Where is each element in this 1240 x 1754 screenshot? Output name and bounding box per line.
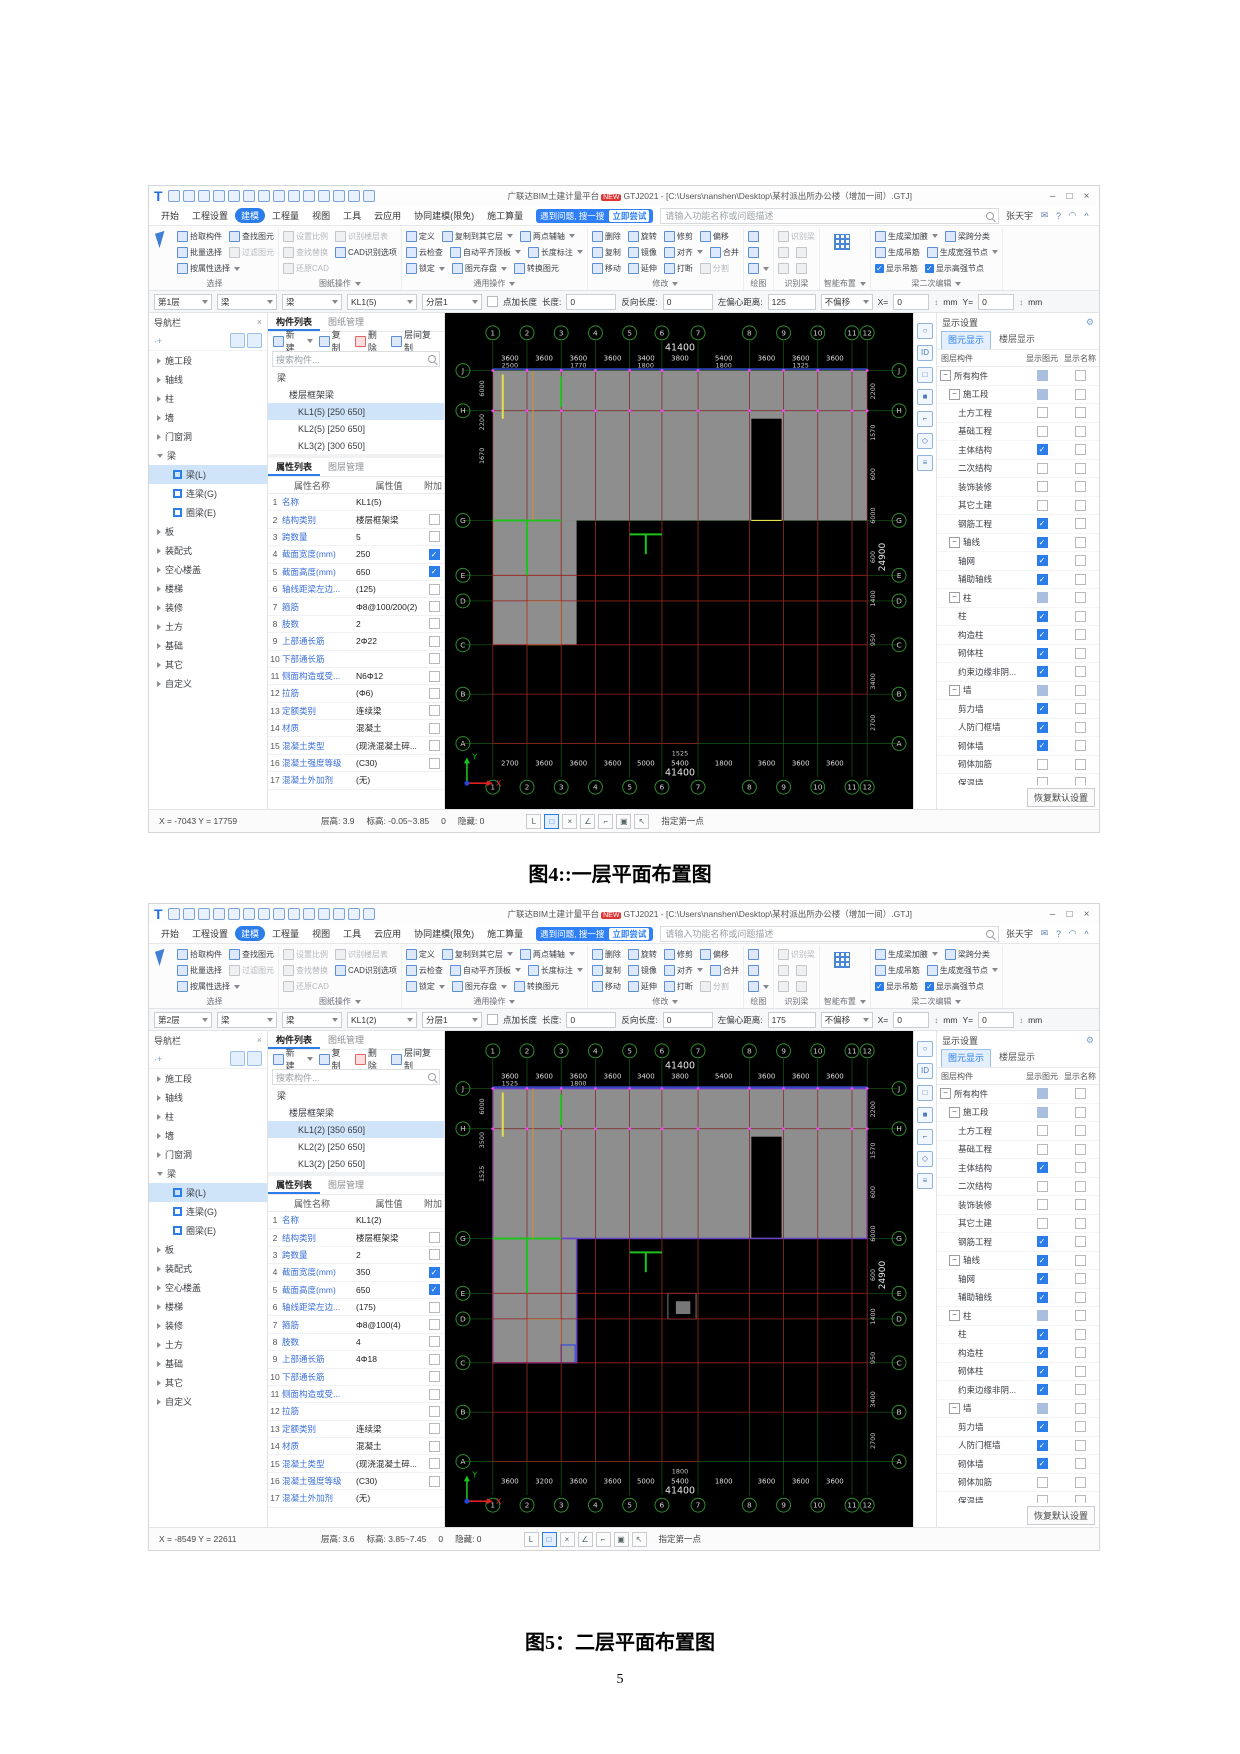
property-row[interactable]: 16混凝土强度等级(C30): [268, 755, 444, 772]
show-name-checkbox[interactable]: [1075, 1495, 1086, 1503]
ribbon-item[interactable]: 移动: [592, 981, 621, 992]
ribbon-item[interactable]: [778, 247, 789, 258]
layer-select[interactable]: 分层1: [422, 1012, 482, 1028]
menu-tab[interactable]: 建模: [235, 208, 265, 223]
ribbon-item[interactable]: 复制到其它层: [442, 949, 513, 960]
sidebar-item[interactable]: 墙: [149, 1126, 267, 1145]
sidebar-item[interactable]: 自定义: [149, 674, 267, 693]
show-name-checkbox[interactable]: [1075, 1384, 1086, 1395]
display-row[interactable]: 砌体墙: [937, 1455, 1099, 1474]
sidebar-item[interactable]: 圈梁(E): [149, 1221, 267, 1240]
sidebar-item[interactable]: 其它: [149, 1373, 267, 1392]
menu-tab[interactable]: 建模: [235, 926, 265, 941]
zoom-window-icon[interactable]: ⌐: [917, 1129, 933, 1145]
ribbon-item[interactable]: 云检查: [406, 247, 443, 258]
compare-icon[interactable]: [303, 908, 315, 920]
tab-layer-management[interactable]: 图层管理: [320, 1176, 372, 1194]
show-element-checkbox[interactable]: [1037, 1162, 1048, 1173]
ribbon-item[interactable]: CAD识别选项: [335, 965, 397, 976]
ribbon-item[interactable]: 延伸: [628, 981, 657, 992]
property-row[interactable]: 9上部通长筋2Φ22: [268, 633, 444, 650]
show-name-checkbox[interactable]: [1075, 629, 1086, 640]
property-row[interactable]: 17混凝土外加剂(无): [268, 1490, 444, 1507]
close-icon[interactable]: ×: [257, 317, 262, 327]
ribbon-item[interactable]: 识别楼层表: [335, 949, 388, 960]
sidebar-item[interactable]: 自定义: [149, 1392, 267, 1411]
sidebar-item[interactable]: 装配式: [149, 1259, 267, 1278]
subcategory-select[interactable]: 梁: [282, 294, 342, 310]
menu-tab[interactable]: 开始: [155, 208, 185, 223]
close-icon[interactable]: ×: [257, 1035, 262, 1045]
sidebar-item[interactable]: 其它: [149, 655, 267, 674]
function-search-input[interactable]: 请输入功能名称或问题描述: [660, 926, 999, 942]
display-row[interactable]: 柱: [937, 1326, 1099, 1345]
redo-icon[interactable]: [243, 190, 255, 202]
property-value[interactable]: Φ8@100(4): [356, 1320, 424, 1330]
show-element-checkbox[interactable]: [1037, 1273, 1048, 1284]
show-name-checkbox[interactable]: [1075, 666, 1086, 677]
display-row[interactable]: 构造柱: [937, 1344, 1099, 1363]
property-value[interactable]: (Φ6): [356, 688, 424, 698]
rect-select-icon[interactable]: □: [544, 814, 559, 829]
ribbon-item[interactable]: 镜像: [628, 965, 657, 976]
show-element-checkbox[interactable]: [1037, 1403, 1048, 1414]
property-value[interactable]: KL1(2): [356, 1215, 424, 1225]
floor-select[interactable]: 第2层: [154, 1012, 212, 1028]
show-name-checkbox[interactable]: [1075, 1181, 1086, 1192]
ribbon-item[interactable]: 两点辅轴: [520, 231, 575, 242]
attach-checkbox[interactable]: [429, 1423, 440, 1434]
display-row[interactable]: 保温墙: [937, 774, 1099, 785]
solid-cube-icon[interactable]: ■: [917, 1107, 933, 1123]
show-element-checkbox[interactable]: [1037, 1125, 1048, 1136]
minimize-button[interactable]: –: [1045, 909, 1060, 920]
ribbon-item[interactable]: 识别梁: [778, 231, 815, 242]
sidebar-item[interactable]: 墙: [149, 408, 267, 427]
maximize-button[interactable]: □: [1062, 191, 1077, 202]
property-row[interactable]: 11侧面构造或受...N6Φ12: [268, 668, 444, 685]
property-row[interactable]: 2结构类别楼层框架梁: [268, 511, 444, 528]
display-row[interactable]: 砌体柱: [937, 1363, 1099, 1382]
compare-icon[interactable]: [303, 190, 315, 202]
menu-tab[interactable]: 工程设置: [186, 926, 234, 941]
property-row[interactable]: 1名称KL1(5): [268, 494, 444, 511]
show-name-checkbox[interactable]: [1075, 1477, 1086, 1488]
sidebar-item[interactable]: 空心楼盖: [149, 560, 267, 579]
sidebar-item[interactable]: 施工段: [149, 1069, 267, 1088]
ribbon-item[interactable]: 生成梁加腋: [875, 949, 938, 960]
category-select[interactable]: 梁: [217, 1012, 277, 1028]
show-name-checkbox[interactable]: [1075, 759, 1086, 770]
property-value[interactable]: Φ8@100/200(2): [356, 602, 424, 612]
property-value[interactable]: 4: [356, 1337, 424, 1347]
show-element-checkbox[interactable]: [1037, 1310, 1048, 1321]
menu-tab[interactable]: 施工算量: [481, 208, 529, 223]
ribbon-item[interactable]: [796, 981, 807, 992]
property-value[interactable]: (C30): [356, 1476, 424, 1486]
show-name-checkbox[interactable]: [1075, 1107, 1086, 1118]
ribbon-item[interactable]: 偏移: [700, 231, 729, 242]
ribbon-item[interactable]: 定义: [406, 949, 435, 960]
layout-icon[interactable]: [333, 908, 345, 920]
display-row[interactable]: 人防门框墙: [937, 719, 1099, 738]
layout-icon[interactable]: [333, 190, 345, 202]
ortho-mode-icon[interactable]: L: [526, 814, 541, 829]
list-view-button[interactable]: [230, 333, 245, 348]
tab-property-list[interactable]: 属性列表: [268, 458, 320, 476]
display-row[interactable]: 其它土建: [937, 497, 1099, 516]
menu-tab[interactable]: 工程量: [266, 926, 305, 941]
show-element-checkbox[interactable]: [1037, 722, 1048, 733]
property-value[interactable]: 4Φ18: [356, 1354, 424, 1364]
ribbon-item[interactable]: 查找替换: [283, 247, 328, 258]
show-name-checkbox[interactable]: [1075, 389, 1086, 400]
show-name-checkbox[interactable]: [1075, 426, 1086, 437]
angle-snap-icon[interactable]: ∠: [578, 1532, 593, 1547]
zoom-window-icon[interactable]: ⌐: [917, 411, 933, 427]
menu-tab[interactable]: 工程设置: [186, 208, 234, 223]
ribbon-item[interactable]: 拾取构件: [177, 231, 222, 242]
show-element-checkbox[interactable]: [1037, 1144, 1048, 1155]
ribbon-item[interactable]: 移动: [592, 263, 621, 274]
display-row[interactable]: 砌体加筋: [937, 756, 1099, 775]
display-row[interactable]: 基础工程: [937, 423, 1099, 442]
ribbon-item[interactable]: [748, 263, 769, 274]
user-name[interactable]: 张天宇: [1006, 209, 1033, 222]
display-row[interactable]: 辅助轴线: [937, 571, 1099, 590]
attach-checkbox[interactable]: [429, 1458, 440, 1469]
collapse-icon[interactable]: −: [949, 389, 960, 400]
ribbon-item[interactable]: 图元存盘: [452, 981, 507, 992]
sidebar-item[interactable]: 连梁(G): [149, 1202, 267, 1221]
show-element-checkbox[interactable]: [1037, 592, 1048, 603]
display-row[interactable]: 约束边缘非阴...: [937, 1381, 1099, 1400]
display-row[interactable]: 二次结构: [937, 460, 1099, 479]
component-tree-item[interactable]: 楼层框架梁: [268, 386, 444, 403]
property-value[interactable]: 混凝土: [356, 1440, 424, 1452]
ribbon-item[interactable]: 显示高强节点: [925, 263, 984, 274]
attach-checkbox[interactable]: [429, 705, 440, 716]
sidebar-item[interactable]: 板: [149, 1240, 267, 1259]
ribbon-item[interactable]: 识别楼层表: [335, 231, 388, 242]
layer-select[interactable]: 分层1: [422, 294, 482, 310]
show-name-checkbox[interactable]: [1075, 1255, 1086, 1266]
property-row[interactable]: 5截面高度(mm)650: [268, 564, 444, 581]
component-tree-item[interactable]: KL1(5) [250 650]: [268, 403, 444, 420]
ribbon-item[interactable]: 还原CAD: [283, 263, 329, 274]
show-element-checkbox[interactable]: [1037, 611, 1048, 622]
tab-storey-display[interactable]: 楼层显示: [993, 331, 1041, 349]
property-value[interactable]: KL1(5): [356, 497, 424, 507]
checkbox-checked-icon[interactable]: [875, 264, 884, 273]
show-name-checkbox[interactable]: [1075, 555, 1086, 566]
display-row[interactable]: −施工段: [937, 1104, 1099, 1123]
redo-icon[interactable]: [243, 908, 255, 920]
display-row[interactable]: −墙: [937, 1400, 1099, 1419]
ribbon-item[interactable]: 删除: [592, 949, 621, 960]
tab-storey-display[interactable]: 楼层显示: [993, 1049, 1041, 1067]
ribbon-item[interactable]: 删除: [592, 231, 621, 242]
ribbon-item[interactable]: 查找图元: [229, 231, 274, 242]
user-name[interactable]: 张天宇: [1006, 927, 1033, 940]
offset-mode-select[interactable]: 不偏移: [821, 1012, 873, 1028]
show-element-checkbox[interactable]: [1037, 407, 1048, 418]
help-icon[interactable]: ?: [1052, 211, 1065, 221]
ribbon-item[interactable]: 梁跨分类: [945, 949, 990, 960]
component-select[interactable]: KL1(5): [347, 294, 417, 310]
ribbon-item[interactable]: 合并: [710, 247, 739, 258]
component-tree-item[interactable]: 楼层框架梁: [268, 1104, 444, 1121]
property-value[interactable]: (175): [356, 1302, 424, 1312]
ribbon-item[interactable]: 转换图元: [514, 981, 559, 992]
ribbon-item[interactable]: 查找替换: [283, 965, 328, 976]
attach-checkbox[interactable]: [429, 1406, 440, 1417]
property-row[interactable]: 15混凝土类型(现浇混凝土碎...: [268, 737, 444, 754]
sidebar-item[interactable]: 基础: [149, 636, 267, 655]
ribbon-item[interactable]: 设置比例: [283, 231, 328, 242]
display-row[interactable]: 钢筋工程: [937, 515, 1099, 534]
show-element-checkbox[interactable]: [1037, 1477, 1048, 1488]
show-name-checkbox[interactable]: [1075, 1292, 1086, 1303]
property-value[interactable]: 2: [356, 619, 424, 629]
smart-layout-icon[interactable]: [834, 234, 850, 250]
orbit-view-icon[interactable]: ○: [917, 1041, 933, 1057]
show-name-checkbox[interactable]: [1075, 1273, 1086, 1284]
ortho-mode-icon[interactable]: L: [524, 1532, 539, 1547]
attach-checkbox[interactable]: [429, 653, 440, 664]
ribbon-item[interactable]: 修剪: [664, 231, 693, 242]
display-row[interactable]: 砌体墙: [937, 737, 1099, 756]
floor-select[interactable]: 第1层: [154, 294, 212, 310]
display-row[interactable]: 轴网: [937, 1270, 1099, 1289]
sidebar-item[interactable]: 板: [149, 522, 267, 541]
show-name-checkbox[interactable]: [1075, 1403, 1086, 1414]
id-view-icon[interactable]: ID: [917, 345, 933, 361]
view-cube-icon[interactable]: □: [917, 1085, 933, 1101]
sidebar-item[interactable]: 连梁(G): [149, 484, 267, 503]
display-row[interactable]: 主体结构: [937, 1159, 1099, 1178]
ribbon-item[interactable]: 生成吊筋: [875, 965, 920, 976]
x-input[interactable]: 0: [893, 1012, 929, 1028]
restore-defaults-button[interactable]: 恢复默认设置: [1027, 1506, 1095, 1525]
display-row[interactable]: 土方工程: [937, 404, 1099, 423]
show-name-checkbox[interactable]: [1075, 1347, 1086, 1358]
property-row[interactable]: 12拉筋(Φ6): [268, 685, 444, 702]
attach-checkbox[interactable]: [429, 1249, 440, 1260]
sidebar-item[interactable]: 圈梁(E): [149, 503, 267, 522]
show-element-checkbox[interactable]: [1037, 537, 1048, 548]
ribbon-item[interactable]: 显示高强节点: [925, 981, 984, 992]
show-element-checkbox[interactable]: [1037, 370, 1048, 381]
offset-input[interactable]: 175: [768, 1012, 816, 1028]
ribbon-item[interactable]: [748, 965, 759, 976]
reverse-length-input[interactable]: 0: [663, 294, 713, 310]
sidebar-item[interactable]: 梁(L): [149, 465, 267, 484]
ribbon-item[interactable]: 生成宽强节点: [927, 965, 998, 976]
ribbon-item[interactable]: 定义: [406, 231, 435, 242]
show-name-checkbox[interactable]: [1075, 592, 1086, 603]
property-row[interactable]: 4截面宽度(mm)350: [268, 1264, 444, 1281]
ribbon-item[interactable]: 还原CAD: [283, 981, 329, 992]
collapse-icon[interactable]: −: [949, 1310, 960, 1321]
ribbon-item[interactable]: 两点辅轴: [520, 949, 575, 960]
show-element-checkbox[interactable]: [1037, 389, 1048, 400]
ribbon-item[interactable]: 旋转: [628, 231, 657, 242]
attach-checkbox[interactable]: [429, 618, 440, 629]
display-row[interactable]: −墙: [937, 682, 1099, 701]
display-row[interactable]: 保温墙: [937, 1492, 1099, 1503]
x-stepper[interactable]: [934, 297, 938, 307]
display-row[interactable]: −柱: [937, 589, 1099, 608]
display-row[interactable]: 土方工程: [937, 1122, 1099, 1141]
display-row[interactable]: 辅助轴线: [937, 1289, 1099, 1308]
property-value[interactable]: 5: [356, 532, 424, 542]
table-icon[interactable]: [288, 908, 300, 920]
ribbon-item[interactable]: 转换图元: [514, 263, 559, 274]
property-row[interactable]: 17混凝土外加剂(无): [268, 772, 444, 789]
select-cursor-icon[interactable]: [155, 949, 169, 966]
ribbon-item[interactable]: 自动平齐顶板: [450, 965, 521, 976]
ribbon-item[interactable]: 设置比例: [283, 949, 328, 960]
x-input[interactable]: 0: [893, 294, 929, 310]
show-element-checkbox[interactable]: [1037, 1421, 1048, 1432]
minimize-button[interactable]: –: [1045, 191, 1060, 202]
property-value[interactable]: (现浇混凝土碎...: [356, 740, 424, 752]
property-value[interactable]: 2: [356, 1250, 424, 1260]
show-element-checkbox[interactable]: [1037, 1292, 1048, 1303]
show-name-checkbox[interactable]: [1075, 500, 1086, 511]
menu-tab[interactable]: 云应用: [368, 208, 407, 223]
show-element-checkbox[interactable]: [1037, 1384, 1048, 1395]
property-row[interactable]: 5截面高度(mm)650: [268, 1282, 444, 1299]
sidebar-item[interactable]: 轴线: [149, 1088, 267, 1107]
length-input[interactable]: 0: [566, 294, 616, 310]
component-tree-item[interactable]: KL1(2) [350 650]: [268, 1121, 444, 1138]
show-element-checkbox[interactable]: [1037, 518, 1048, 529]
ribbon-item[interactable]: [796, 965, 807, 976]
ribbon-item[interactable]: [748, 247, 759, 258]
show-element-checkbox[interactable]: [1037, 1440, 1048, 1451]
menu-tab[interactable]: 工程量: [266, 208, 305, 223]
display-row[interactable]: 轴网: [937, 552, 1099, 571]
sidebar-item[interactable]: 装配式: [149, 541, 267, 560]
menu-tab[interactable]: 协同建模(限免): [408, 208, 480, 223]
ribbon-item[interactable]: 识别梁: [778, 949, 815, 960]
close-button[interactable]: ×: [1079, 909, 1094, 920]
ribbon-item[interactable]: 生成吊筋: [875, 247, 920, 258]
property-value[interactable]: 连续梁: [356, 1423, 424, 1435]
show-element-checkbox[interactable]: [1037, 1347, 1048, 1358]
collapse-icon[interactable]: −: [949, 1107, 960, 1118]
attach-checkbox[interactable]: [429, 1389, 440, 1400]
sync-icon[interactable]: [348, 190, 360, 202]
ribbon-item[interactable]: [796, 263, 807, 274]
component-search-input[interactable]: 搜索构件...: [272, 1069, 440, 1085]
property-row[interactable]: 4截面宽度(mm)250: [268, 546, 444, 563]
pick-mode-icon[interactable]: ↖: [632, 1532, 647, 1547]
ribbon-item[interactable]: 长度标注: [528, 965, 583, 976]
property-value[interactable]: N6Φ12: [356, 671, 424, 681]
help-banner[interactable]: 遇到问题, 搜一搜立即尝试: [536, 209, 653, 223]
checkbox-checked-icon[interactable]: [925, 982, 934, 991]
show-element-checkbox[interactable]: [1037, 1329, 1048, 1340]
property-value[interactable]: 250: [356, 549, 424, 559]
display-row[interactable]: −轴线: [937, 1252, 1099, 1271]
y-input[interactable]: 0: [978, 294, 1014, 310]
ribbon-item[interactable]: 复制: [592, 247, 621, 258]
ribbon-item[interactable]: 对齐: [664, 247, 703, 258]
ribbon-item[interactable]: 批量选择: [177, 965, 222, 976]
checkbox-checked-icon[interactable]: [925, 264, 934, 273]
ribbon-item[interactable]: 复制: [592, 965, 621, 976]
close-button[interactable]: ×: [1079, 191, 1094, 202]
ribbon-item[interactable]: 按属性选择: [177, 981, 240, 992]
property-value[interactable]: (C30): [356, 758, 424, 768]
property-row[interactable]: 13定额类别连续梁: [268, 703, 444, 720]
ribbon-item[interactable]: 拾取构件: [177, 949, 222, 960]
show-element-checkbox[interactable]: [1037, 1107, 1048, 1118]
show-element-checkbox[interactable]: [1037, 500, 1048, 511]
show-name-checkbox[interactable]: [1075, 463, 1086, 474]
show-name-checkbox[interactable]: [1075, 1310, 1086, 1321]
ribbon-item[interactable]: [748, 949, 759, 960]
collapse-icon[interactable]: −: [949, 592, 960, 603]
show-element-checkbox[interactable]: [1037, 703, 1048, 714]
property-value[interactable]: (无): [356, 774, 424, 786]
property-row[interactable]: 9上部通长筋4Φ18: [268, 1351, 444, 1368]
reverse-length-input[interactable]: 0: [663, 1012, 713, 1028]
menu-tab[interactable]: 视图: [306, 926, 336, 941]
show-element-checkbox[interactable]: [1037, 1218, 1048, 1229]
show-name-checkbox[interactable]: [1075, 1199, 1086, 1210]
attach-checkbox[interactable]: [429, 671, 440, 682]
component-tree-item[interactable]: 梁: [268, 1087, 444, 1104]
display-row[interactable]: 人防门框墙: [937, 1437, 1099, 1456]
attach-checkbox[interactable]: [429, 1232, 440, 1243]
ribbon-item[interactable]: CAD识别选项: [335, 247, 397, 258]
property-row[interactable]: 11侧面构造或受...: [268, 1386, 444, 1403]
ribbon-item[interactable]: 云检查: [406, 965, 443, 976]
show-name-checkbox[interactable]: [1075, 574, 1086, 585]
show-name-checkbox[interactable]: [1075, 1366, 1086, 1377]
sidebar-item[interactable]: 土方: [149, 617, 267, 636]
attach-checkbox[interactable]: [429, 1319, 440, 1330]
rect-select-icon[interactable]: □: [542, 1532, 557, 1547]
ribbon-item[interactable]: 自动平齐顶板: [450, 247, 521, 258]
display-row[interactable]: −所有构件: [937, 367, 1099, 386]
ribbon-item[interactable]: [778, 263, 789, 274]
save-icon[interactable]: [213, 908, 225, 920]
ribbon-item[interactable]: 分割: [700, 981, 729, 992]
subcategory-select[interactable]: 梁: [282, 1012, 342, 1028]
menu-tab[interactable]: 云应用: [368, 926, 407, 941]
skin-icon[interactable]: ◠: [1066, 928, 1079, 939]
property-value[interactable]: 楼层框架梁: [356, 1232, 424, 1244]
show-name-checkbox[interactable]: [1075, 777, 1086, 785]
ribbon-item[interactable]: 旋转: [628, 949, 657, 960]
display-row[interactable]: 二次结构: [937, 1178, 1099, 1197]
solid-cube-icon[interactable]: ■: [917, 389, 933, 405]
attach-checkbox[interactable]: [429, 1284, 440, 1295]
attach-checkbox[interactable]: [429, 584, 440, 595]
tab-element-display[interactable]: 图元显示: [941, 1049, 991, 1067]
property-value[interactable]: 650: [356, 1285, 424, 1295]
sidebar-item[interactable]: 梁: [149, 1164, 267, 1183]
show-element-checkbox[interactable]: [1037, 1236, 1048, 1247]
display-row[interactable]: 装饰装修: [937, 1196, 1099, 1215]
show-name-checkbox[interactable]: [1075, 1088, 1086, 1099]
show-element-checkbox[interactable]: [1037, 1255, 1048, 1266]
